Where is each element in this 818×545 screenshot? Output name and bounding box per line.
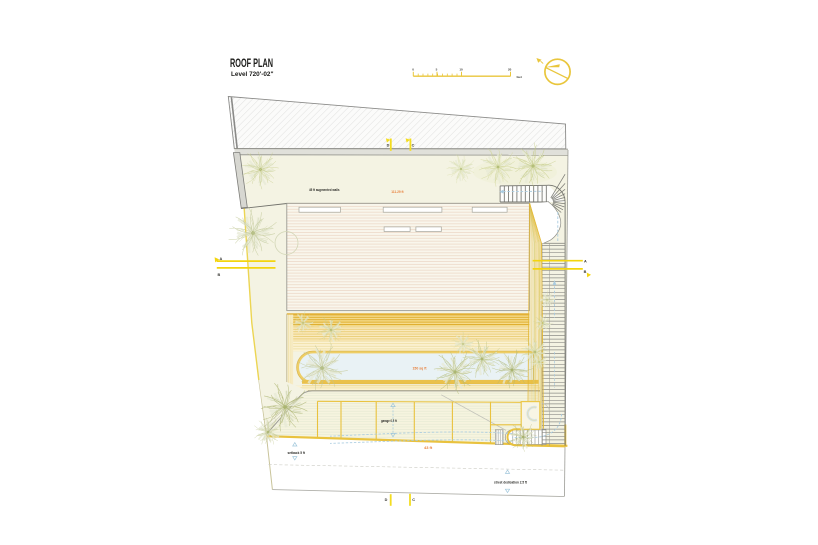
svg-text:20: 20 <box>508 67 512 71</box>
svg-text:150 sq ft: 150 sq ft <box>413 366 428 370</box>
svg-text:garage 0.5 ft: garage 0.5 ft <box>381 419 397 423</box>
svg-text:43 ft: 43 ft <box>424 446 433 450</box>
svg-text:C: C <box>412 498 415 502</box>
svg-text:feet: feet <box>517 75 522 79</box>
svg-text:setback 5 ft: setback 5 ft <box>288 451 306 455</box>
svg-text:111.29 ft: 111.29 ft <box>391 190 404 194</box>
svg-text:ROOF PLAN: ROOF PLAN <box>230 57 273 70</box>
svg-text:street dedication 2.5 ft: street dedication 2.5 ft <box>494 481 528 485</box>
svg-text:D: D <box>387 143 390 147</box>
svg-text:B: B <box>218 273 221 277</box>
svg-text:B: B <box>584 270 587 274</box>
svg-text:A: A <box>584 259 587 263</box>
svg-text:45 ft augmented walls: 45 ft augmented walls <box>309 188 340 192</box>
svg-text:10: 10 <box>459 67 463 71</box>
svg-text:C: C <box>412 143 415 147</box>
svg-text:A: A <box>220 257 223 261</box>
svg-text:D: D <box>385 498 388 502</box>
svg-text:Level 720'-02": Level 720'-02" <box>231 71 274 78</box>
